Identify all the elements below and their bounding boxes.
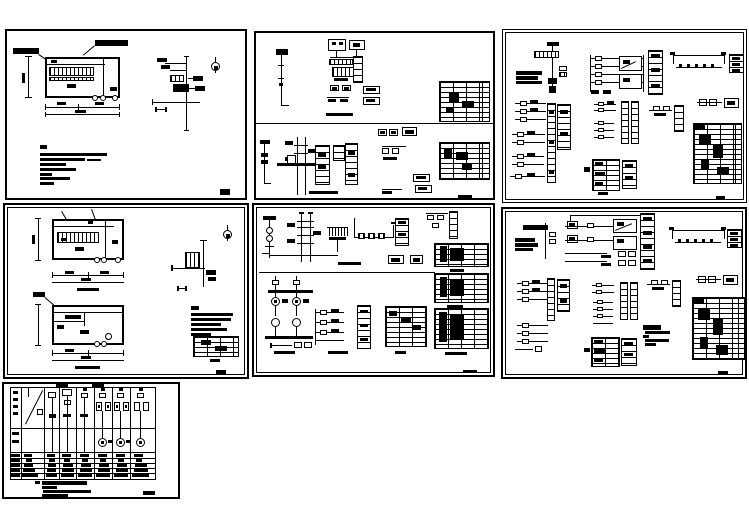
blob — [125, 405, 127, 408]
title-mark — [143, 491, 155, 495]
blob — [623, 78, 630, 82]
box — [517, 140, 524, 145]
blob — [695, 125, 705, 129]
blob — [139, 441, 142, 444]
tick — [155, 107, 157, 112]
tick — [710, 239, 713, 243]
blob — [80, 469, 92, 472]
box — [587, 237, 594, 242]
blob — [601, 255, 611, 258]
title-bar — [328, 351, 348, 354]
blob — [114, 474, 128, 477]
blob — [439, 312, 447, 342]
column-line — [112, 387, 113, 480]
tick — [694, 239, 697, 243]
blob — [607, 101, 614, 104]
blob — [654, 113, 666, 116]
blob — [532, 288, 540, 291]
blob — [95, 102, 104, 105]
dimension-line — [52, 282, 124, 283]
sheet-2-frame — [254, 31, 495, 200]
row-line — [10, 452, 156, 453]
blob — [318, 153, 326, 157]
panel-row — [49, 67, 94, 76]
title-bar — [458, 195, 472, 198]
leader-line — [83, 45, 95, 55]
box — [520, 109, 527, 114]
box — [628, 260, 636, 266]
tick — [165, 107, 167, 112]
blob — [276, 49, 288, 55]
line — [272, 345, 292, 346]
box — [595, 80, 602, 85]
blob — [32, 235, 35, 244]
blob — [444, 148, 452, 158]
box — [520, 117, 527, 122]
box — [515, 174, 522, 179]
cad-drawing-collage — [0, 0, 749, 530]
tick — [702, 239, 705, 243]
line — [103, 59, 104, 96]
blob — [285, 141, 293, 145]
blob — [643, 231, 652, 235]
line — [264, 144, 265, 184]
blob — [594, 340, 603, 344]
blob — [398, 233, 406, 236]
blob — [360, 310, 368, 313]
divider-line — [256, 123, 493, 124]
line — [393, 225, 394, 238]
line — [296, 306, 297, 316]
tick — [294, 153, 308, 154]
tick — [52, 350, 53, 356]
line — [165, 63, 186, 64]
blob — [652, 287, 664, 290]
blob — [331, 309, 339, 312]
tick — [200, 240, 207, 241]
blob — [624, 342, 633, 345]
dimension-line — [45, 107, 120, 108]
line — [593, 309, 613, 310]
line — [54, 321, 84, 322]
note-line — [40, 173, 52, 176]
column-line — [59, 387, 60, 480]
line — [47, 64, 105, 65]
box — [382, 148, 389, 154]
blob — [78, 474, 92, 477]
title-bar — [326, 113, 353, 116]
blob — [75, 247, 84, 251]
line — [52, 398, 53, 452]
blob — [413, 258, 420, 262]
blob — [701, 159, 709, 169]
blob — [193, 76, 203, 81]
title-bar — [77, 288, 99, 291]
circle — [115, 257, 121, 263]
tick — [329, 228, 330, 236]
blob — [173, 84, 189, 92]
blob — [716, 345, 728, 355]
blob — [24, 464, 33, 467]
column-line — [130, 387, 131, 480]
line — [281, 105, 289, 106]
blob — [80, 414, 88, 417]
blob — [11, 474, 20, 477]
blob — [215, 346, 227, 351]
line — [675, 242, 721, 243]
blob — [92, 384, 104, 387]
blob — [348, 173, 355, 177]
box — [522, 339, 529, 344]
blob — [67, 84, 76, 88]
blob — [700, 337, 708, 349]
blob — [549, 170, 554, 174]
blob — [713, 319, 723, 335]
line — [188, 78, 193, 79]
blob — [116, 405, 118, 408]
blob — [75, 110, 86, 113]
blob — [547, 42, 559, 46]
box — [596, 283, 602, 287]
line — [296, 327, 297, 336]
blob — [328, 99, 336, 102]
tick — [687, 64, 690, 68]
box — [598, 108, 604, 112]
blob — [49, 459, 55, 462]
box — [320, 310, 327, 315]
blob — [13, 405, 18, 408]
component — [358, 233, 365, 239]
line — [152, 102, 200, 103]
tick — [297, 235, 314, 236]
notes-header — [40, 145, 47, 149]
box — [549, 232, 556, 237]
blob — [47, 454, 55, 457]
box — [522, 331, 529, 336]
blob — [83, 388, 87, 391]
tick — [184, 130, 189, 131]
note-line — [40, 158, 85, 161]
text-block — [515, 238, 535, 242]
blob — [643, 217, 652, 221]
blob — [100, 271, 109, 274]
blob — [595, 182, 603, 186]
motor-circle — [271, 318, 280, 327]
blob — [360, 338, 368, 341]
blob — [717, 167, 729, 175]
blob — [334, 78, 348, 81]
blob — [366, 99, 375, 102]
blob — [100, 459, 106, 462]
blob — [527, 153, 535, 156]
line — [264, 183, 271, 184]
box — [62, 389, 72, 396]
box — [427, 215, 434, 220]
blob — [584, 167, 590, 172]
sheet-4-frame — [3, 203, 249, 379]
blob — [287, 223, 295, 227]
dimension-line — [38, 219, 39, 260]
box — [595, 72, 602, 77]
title-bar — [716, 196, 725, 199]
blob — [110, 87, 117, 91]
cell-column — [631, 101, 639, 144]
column-line — [21, 387, 22, 480]
blob — [80, 330, 89, 334]
line — [382, 189, 402, 190]
blob — [24, 454, 32, 457]
note-line — [645, 331, 670, 334]
blob — [594, 358, 603, 362]
line — [565, 253, 607, 254]
title-bar — [210, 359, 220, 362]
box — [293, 280, 300, 285]
box — [522, 281, 529, 286]
blob — [195, 86, 205, 91]
tick — [270, 343, 272, 348]
box — [304, 342, 312, 348]
tick — [341, 228, 342, 236]
text-block — [516, 76, 538, 80]
blob — [366, 88, 376, 91]
blob — [62, 454, 71, 457]
box — [618, 251, 626, 257]
note-line — [87, 159, 101, 161]
box — [549, 239, 556, 244]
blob — [107, 405, 109, 408]
blob — [548, 78, 557, 84]
sheet-6-frame — [501, 207, 747, 379]
blob — [135, 464, 147, 467]
notes-header — [643, 325, 661, 330]
tick — [278, 65, 284, 66]
blob — [344, 87, 349, 90]
terminal-strip — [333, 145, 345, 161]
line — [120, 411, 121, 438]
blob — [450, 315, 464, 339]
blob — [82, 459, 88, 462]
note-line — [40, 153, 107, 156]
blob — [560, 110, 568, 114]
line — [594, 130, 614, 131]
tick — [45, 104, 46, 110]
blob — [440, 277, 447, 297]
hatch-block — [332, 67, 354, 77]
blob — [112, 240, 118, 244]
tick — [335, 228, 336, 236]
line — [593, 316, 613, 317]
blob — [560, 284, 567, 288]
hatch-block — [185, 252, 200, 268]
blob — [279, 83, 283, 86]
blob — [418, 187, 427, 190]
blob — [339, 42, 343, 45]
blob — [65, 271, 74, 274]
blob — [391, 131, 396, 134]
tick — [119, 112, 120, 117]
blob — [303, 299, 309, 303]
blob — [81, 356, 91, 359]
blob — [560, 132, 568, 136]
tick — [678, 239, 681, 243]
blob — [260, 140, 270, 144]
terminal-strip — [353, 56, 363, 83]
blob — [401, 317, 411, 322]
blob — [405, 130, 414, 134]
blob — [549, 110, 554, 114]
box — [392, 148, 399, 154]
tick — [35, 218, 41, 219]
blob — [699, 134, 711, 144]
line — [28, 387, 29, 397]
hatch-block — [559, 72, 567, 77]
blob — [65, 349, 74, 352]
hatch-block — [534, 51, 559, 58]
sheet-7-frame — [2, 382, 180, 499]
blob — [12, 432, 19, 435]
blob — [651, 84, 660, 88]
blob — [651, 68, 660, 72]
blob — [13, 398, 18, 401]
text-block — [516, 71, 542, 75]
line — [270, 255, 338, 256]
motor-circle — [292, 318, 301, 327]
blob — [161, 65, 170, 69]
title-mark — [463, 370, 477, 373]
cell-column — [621, 101, 629, 144]
dimension-line — [52, 360, 124, 361]
divider-line — [259, 272, 435, 273]
blob — [88, 220, 93, 224]
blob — [313, 231, 321, 235]
blob — [532, 280, 540, 283]
note-line — [43, 490, 91, 493]
line — [482, 143, 483, 179]
note-line — [40, 168, 76, 171]
blob — [595, 162, 603, 166]
blob — [99, 464, 109, 467]
blob — [549, 140, 554, 144]
line — [673, 55, 674, 64]
line — [594, 137, 614, 138]
box — [597, 300, 603, 304]
blob — [282, 299, 288, 303]
title-bar — [309, 191, 338, 194]
title-mark — [216, 370, 226, 374]
note-line — [643, 335, 649, 338]
circle — [100, 95, 106, 101]
row-line — [10, 428, 156, 429]
blob — [694, 299, 704, 303]
blob — [157, 58, 167, 62]
box — [320, 320, 327, 325]
blob — [49, 414, 56, 418]
blob — [331, 329, 339, 332]
note-line — [40, 182, 54, 185]
blob — [12, 440, 19, 443]
blob — [117, 464, 127, 467]
line — [203, 240, 204, 287]
blob — [63, 464, 73, 467]
title-mark — [718, 371, 728, 374]
blob — [670, 52, 675, 55]
column-line — [44, 387, 45, 480]
note-line — [191, 328, 227, 331]
blob — [11, 454, 20, 457]
blob — [617, 239, 624, 243]
text-block — [516, 81, 542, 84]
blob — [331, 319, 339, 322]
blob — [22, 474, 38, 477]
tick — [297, 227, 314, 228]
box — [517, 154, 524, 159]
blob — [601, 263, 611, 266]
blob — [64, 459, 70, 462]
box — [597, 314, 603, 318]
dimension-line — [45, 114, 120, 115]
box — [99, 393, 106, 398]
line — [482, 82, 483, 121]
box — [437, 215, 444, 220]
blob — [643, 259, 652, 263]
blob — [391, 258, 400, 262]
hatch-block — [329, 59, 353, 65]
line — [570, 215, 640, 216]
box — [595, 64, 602, 69]
box — [432, 223, 439, 228]
blob — [643, 245, 652, 249]
text-block — [515, 243, 538, 247]
circle — [266, 235, 273, 242]
blob — [80, 454, 89, 457]
blob — [726, 278, 734, 282]
line — [565, 261, 607, 262]
blob — [450, 280, 464, 296]
blob — [440, 246, 447, 262]
blob — [65, 315, 81, 319]
tick — [338, 228, 339, 236]
tick — [25, 56, 32, 57]
note-line — [191, 313, 233, 316]
blob — [208, 277, 216, 281]
blob — [603, 90, 611, 94]
blob — [389, 311, 397, 316]
blob — [11, 459, 20, 462]
blob — [119, 388, 123, 391]
blob — [456, 152, 468, 160]
box — [272, 280, 279, 285]
title-bar — [395, 351, 406, 354]
blob — [116, 454, 125, 457]
blob — [713, 144, 723, 158]
blob — [132, 474, 149, 477]
blob — [360, 324, 368, 327]
box — [661, 280, 668, 285]
box — [618, 260, 626, 266]
blob — [47, 469, 56, 472]
title-bar — [450, 269, 464, 272]
line — [54, 312, 122, 313]
blob — [446, 107, 454, 112]
line — [102, 411, 103, 438]
circle — [94, 257, 100, 263]
line — [673, 55, 725, 56]
tick — [152, 99, 153, 105]
blob — [96, 474, 110, 477]
blob — [61, 474, 74, 477]
box — [517, 162, 524, 167]
line — [84, 398, 85, 452]
